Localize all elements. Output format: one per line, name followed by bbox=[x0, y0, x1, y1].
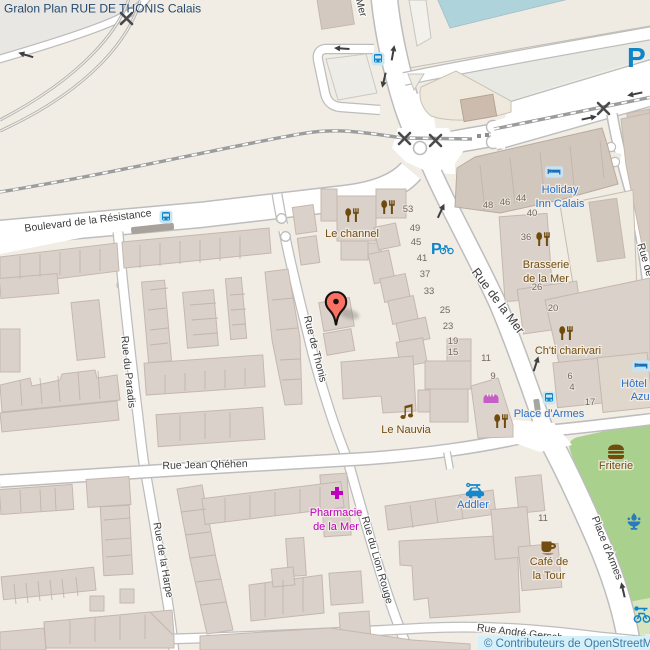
svg-text:Holiday: Holiday bbox=[542, 184, 579, 196]
svg-text:49: 49 bbox=[410, 223, 421, 234]
svg-text:Le channel: Le channel bbox=[325, 228, 379, 240]
svg-text:Le Nauvia: Le Nauvia bbox=[381, 424, 431, 436]
svg-text:© Contributeurs de OpenStreetM: © Contributeurs de OpenStreetMap bbox=[484, 638, 650, 650]
svg-text:Inn Calais: Inn Calais bbox=[536, 198, 585, 210]
svg-text:37: 37 bbox=[420, 269, 431, 280]
svg-text:la Tour: la Tour bbox=[533, 570, 566, 582]
svg-text:11: 11 bbox=[481, 353, 491, 364]
svg-text:36: 36 bbox=[521, 232, 532, 243]
svg-text:Place d'Armes: Place d'Armes bbox=[514, 408, 585, 420]
svg-text:de la Mer: de la Mer bbox=[313, 521, 359, 533]
svg-text:23: 23 bbox=[443, 321, 454, 332]
svg-text:Azur: Azur bbox=[631, 391, 650, 403]
svg-text:15: 15 bbox=[448, 347, 459, 358]
svg-text:48: 48 bbox=[483, 200, 494, 211]
svg-text:Café de: Café de bbox=[530, 556, 569, 568]
svg-text:53: 53 bbox=[403, 204, 414, 215]
svg-text:Hôtel: Hôtel bbox=[621, 378, 647, 390]
svg-text:44: 44 bbox=[516, 193, 527, 204]
svg-text:P: P bbox=[627, 42, 646, 73]
svg-text:de la Mer: de la Mer bbox=[523, 273, 569, 285]
svg-text:Addler: Addler bbox=[457, 499, 489, 511]
svg-text:4: 4 bbox=[569, 382, 574, 393]
svg-text:17: 17 bbox=[585, 397, 596, 408]
svg-text:Rue Jean Qhéhen: Rue Jean Qhéhen bbox=[162, 458, 248, 472]
svg-text:6: 6 bbox=[567, 371, 572, 382]
svg-text:20: 20 bbox=[548, 303, 559, 314]
svg-text:33: 33 bbox=[424, 286, 435, 297]
svg-text:Friterie: Friterie bbox=[599, 460, 633, 472]
svg-text:Pharmacie: Pharmacie bbox=[310, 507, 363, 519]
svg-text:41: 41 bbox=[417, 253, 428, 264]
svg-text:45: 45 bbox=[411, 237, 422, 248]
svg-text:Ch'ti charivari: Ch'ti charivari bbox=[535, 345, 601, 357]
svg-text:46: 46 bbox=[500, 197, 511, 208]
svg-text:Gralon Plan RUE DE THONIS Cala: Gralon Plan RUE DE THONIS Calais bbox=[4, 2, 201, 16]
svg-text:9: 9 bbox=[490, 371, 495, 382]
svg-text:Brasserie: Brasserie bbox=[523, 259, 569, 271]
svg-text:11: 11 bbox=[538, 513, 548, 524]
svg-text:40: 40 bbox=[527, 208, 538, 219]
svg-text:25: 25 bbox=[440, 305, 451, 316]
svg-text:19: 19 bbox=[448, 336, 459, 347]
svg-text:26: 26 bbox=[532, 282, 543, 293]
